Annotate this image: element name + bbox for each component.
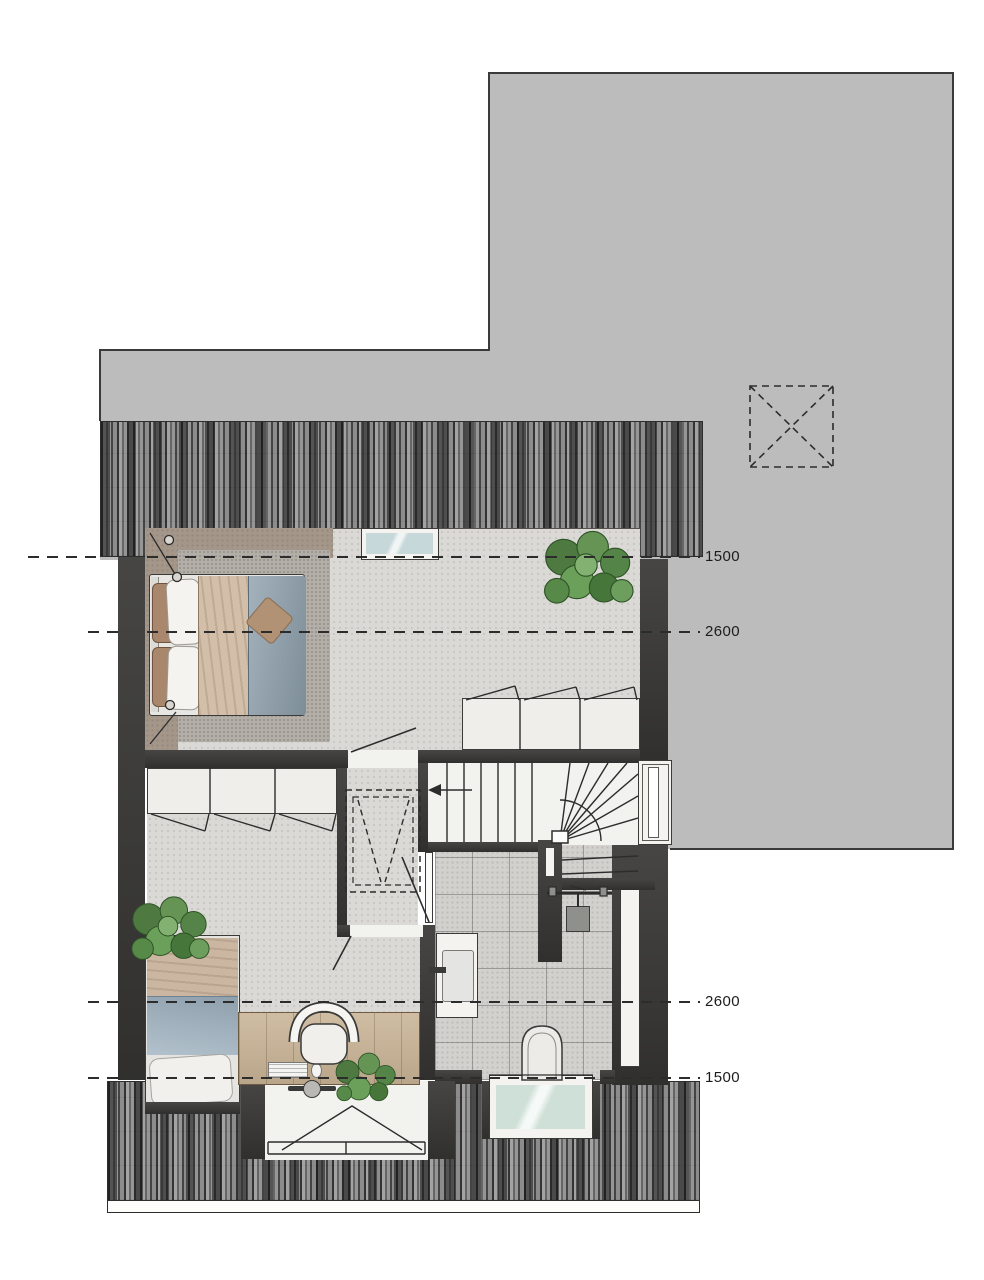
wall-stair-top [418, 750, 640, 763]
dimension-label-1500-top: 1500 [705, 548, 740, 565]
dimension-label-2600-top: 2600 [705, 623, 740, 640]
floor-plan-canvas: 1500 2600 2600 1500 [0, 0, 984, 1280]
wall-right-upper [640, 559, 668, 763]
stair-window-sash [648, 767, 659, 838]
plant-bedroom1 [530, 522, 642, 626]
bathroom-door-leaf [425, 852, 433, 923]
staircase-floor [428, 763, 640, 842]
shower-head [566, 906, 590, 932]
bathroom-window [489, 1075, 593, 1139]
skylight-glass [366, 533, 433, 554]
skylight-window [361, 528, 439, 560]
washbasin-sink [442, 950, 474, 1002]
wall-bathroom-left [420, 925, 435, 1080]
wardrobe-bedroom2 [147, 768, 337, 814]
bathroom-window-jamb-left [482, 1081, 489, 1139]
wall-landing-right [418, 763, 428, 852]
dormer-pier-left [241, 1081, 265, 1159]
washbasin-counter [436, 933, 478, 1018]
wall-stair-bottom-a [428, 842, 538, 852]
wall-bedroom1-bottom [145, 750, 348, 768]
plant-desk [318, 1044, 410, 1118]
washbasin-faucet [429, 967, 446, 973]
toilet [515, 1022, 569, 1082]
bedroom1-door-opening [348, 750, 418, 768]
bed-duvet-blue [248, 576, 306, 715]
dimension-label-2600-bottom: 2600 [705, 993, 740, 1010]
bathroom-window-jamb-right [593, 1081, 600, 1139]
wall-stair-bottom-b [562, 878, 655, 890]
roof-eave-gutter [107, 1200, 700, 1213]
landing-floor [347, 750, 418, 925]
single-bed-duvet [147, 996, 238, 1055]
bed-dormer-foot-wall [145, 1102, 240, 1114]
wardrobe-bedroom1 [462, 698, 640, 750]
shower-door-gap [546, 848, 554, 876]
wall-bathroom-bottom-right [600, 1070, 615, 1084]
dimension-label-1500-bottom: 1500 [705, 1069, 740, 1086]
bathroom-window-glass [496, 1085, 585, 1129]
dormer-pier-right [428, 1081, 455, 1159]
wall-landing-left [337, 768, 347, 937]
wall-right-inset-panel [620, 889, 640, 1067]
bedroom2-door-opening [350, 925, 423, 937]
single-bed-pillow [148, 1053, 233, 1107]
wall-left [118, 557, 145, 1080]
bed-pillow-white-2 [166, 645, 202, 710]
stair-window [638, 760, 672, 845]
wall-landing-bottom [337, 925, 350, 937]
plant-bedroom2 [118, 890, 218, 978]
bed-blanket-beige [198, 576, 252, 715]
double-bed [149, 574, 305, 716]
